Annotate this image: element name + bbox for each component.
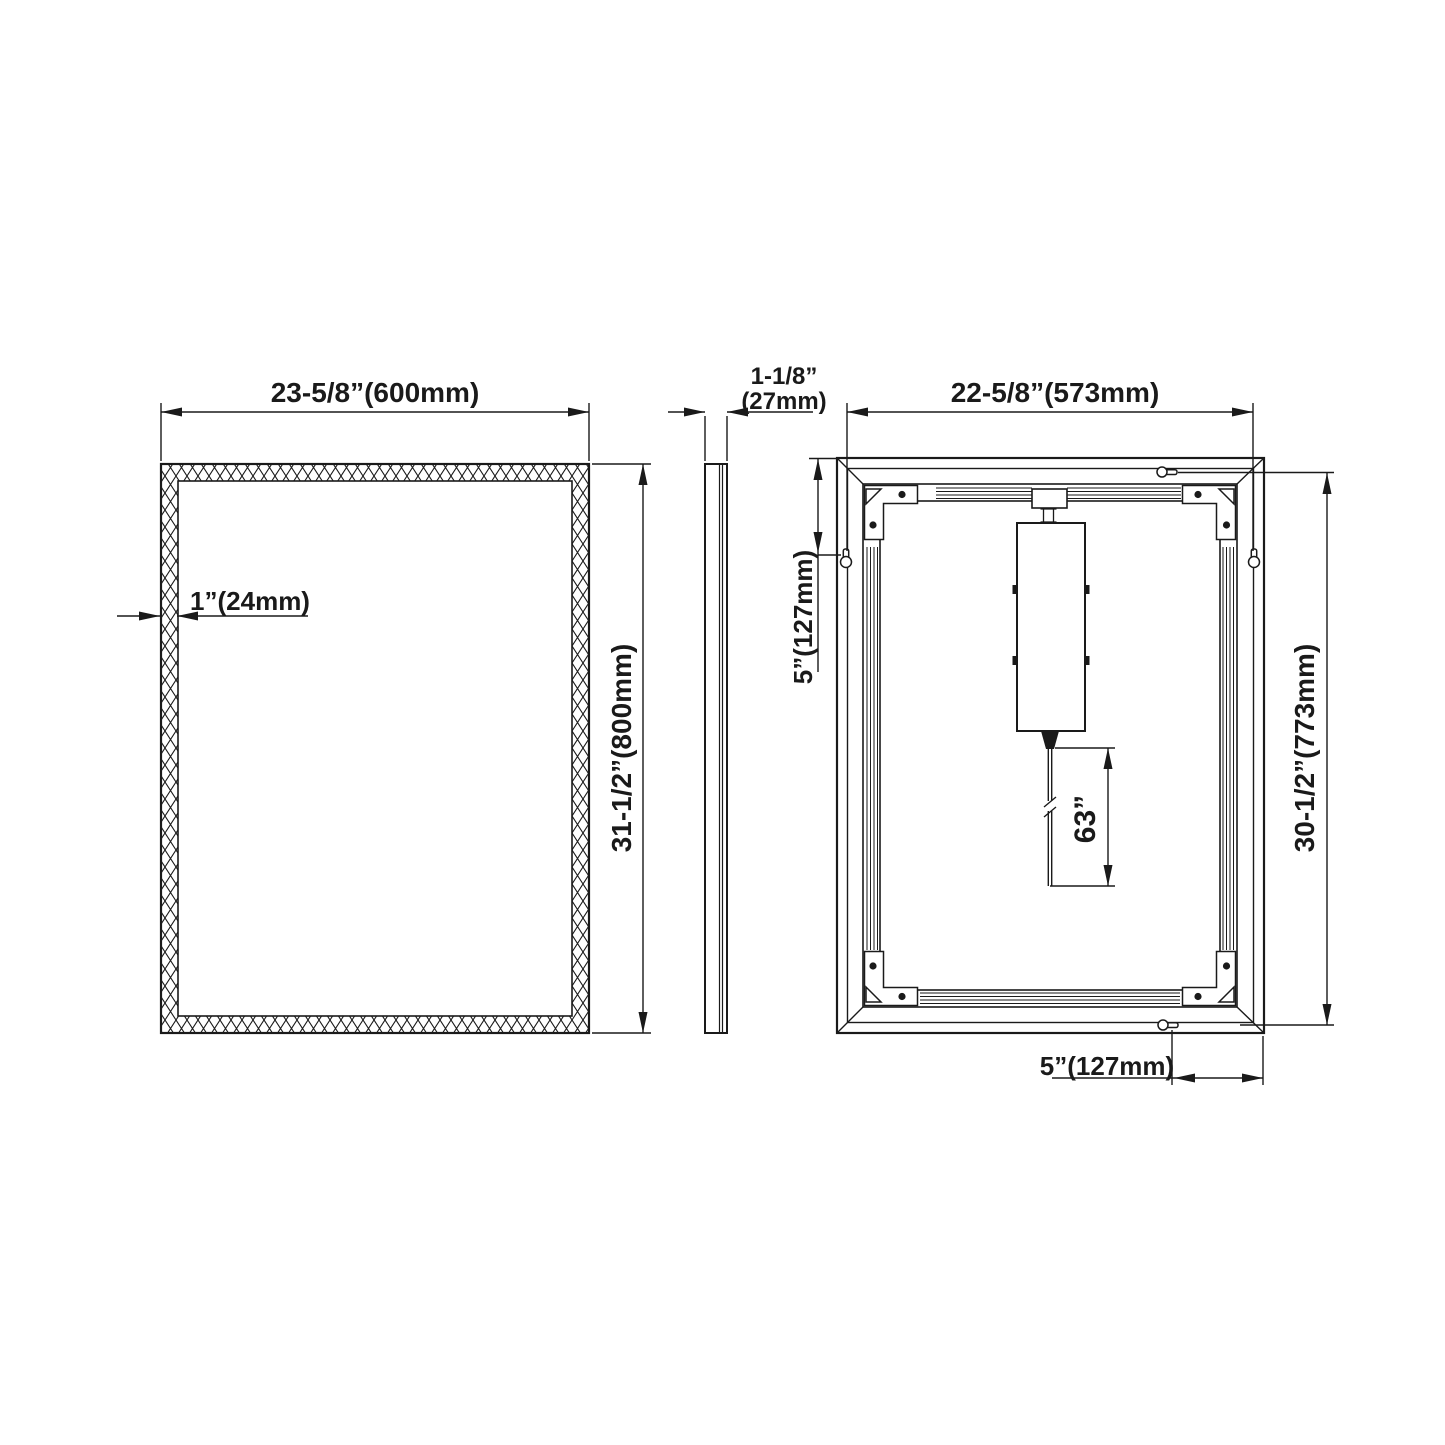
dim-label-hanger-side-offset: 5”(127mm) xyxy=(1027,1051,1187,1081)
dim-label-side-depth-inches: 1-1/8” xyxy=(724,363,844,391)
driver-tab xyxy=(1085,656,1090,665)
front-outer-edge xyxy=(161,464,589,1033)
dim-label-cord-length: 63” xyxy=(1069,779,1103,859)
dim-label-back-height: 30-1/2”(773mm) xyxy=(1288,588,1322,908)
side-profile xyxy=(705,464,727,1033)
keyhole-hanger-right-icon xyxy=(1249,549,1260,568)
keyhole-hanger-left-icon xyxy=(841,549,852,568)
side-glass-lines xyxy=(720,464,723,1033)
dim-label-back-width: 22-5/8”(573mm) xyxy=(895,376,1215,410)
front-view xyxy=(161,464,589,1033)
driver-tab xyxy=(1013,585,1018,594)
dim-label-hanger-top-offset: 5”(127mm) xyxy=(788,537,818,697)
side-view xyxy=(705,464,727,1033)
driver-tab xyxy=(1085,585,1090,594)
front-inner-edge xyxy=(178,481,572,1016)
driver-tab xyxy=(1013,656,1018,665)
dim-label-side-depth-mm: (27mm) xyxy=(724,388,844,416)
technical-drawing-canvas xyxy=(0,0,1445,1445)
led-driver-box xyxy=(1013,523,1090,731)
driver-stem xyxy=(1041,509,1057,523)
dim-label-front-height: 31-1/2”(800mm) xyxy=(605,598,639,898)
dim-label-frame-width: 1”(24mm) xyxy=(170,586,330,616)
junction-box xyxy=(1032,489,1067,508)
dim-label-front-width: 23-5/8”(600mm) xyxy=(225,376,525,410)
keyhole-hanger-bottom-icon xyxy=(1158,1020,1178,1030)
front-frame-hatch xyxy=(161,464,589,1033)
back-view xyxy=(837,458,1264,1033)
technical-drawing-page: 23-5/8”(600mm) 31-1/2”(800mm) 1”(24mm) 1… xyxy=(0,0,1445,1445)
